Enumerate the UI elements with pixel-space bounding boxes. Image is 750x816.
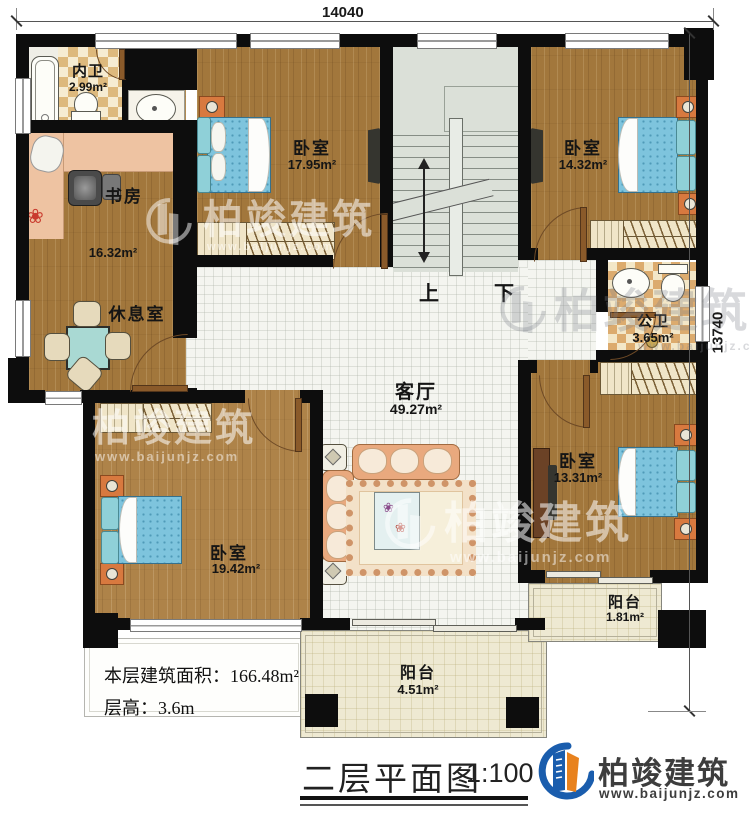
stair-arrow-stem — [423, 168, 425, 254]
wall-bedroomtop-bottom-a — [186, 255, 333, 267]
watermark-text: 柏竣建筑 — [203, 200, 375, 240]
bed-right-pillow-a — [676, 450, 696, 481]
lounge-chair-top — [73, 301, 101, 327]
bed-top-pillow-b — [211, 153, 226, 181]
stair-arrow-up — [418, 158, 430, 169]
wardrobe-bedroom-topright-shelf — [590, 220, 626, 251]
dim-right-value: 13740 — [711, 303, 726, 363]
title-underline-thin — [300, 804, 528, 806]
sofa-cushion — [358, 448, 387, 474]
bed-topright-pillow-b — [676, 156, 696, 191]
pillar-balcony-left — [305, 694, 338, 727]
dim-ext-bottom — [648, 711, 706, 712]
label-neiwei-area: 2.99m² — [69, 81, 107, 93]
wardrobe-bedroom-topright-rod — [623, 220, 698, 251]
wall-lounge-bottom-a — [8, 390, 45, 403]
dim-line-right — [689, 34, 690, 712]
bed-top-headboard-a — [197, 117, 211, 154]
label-keting: 客厅 — [395, 383, 437, 402]
bed-bottomleft-headboard-b — [101, 531, 119, 564]
wall-stairs-right — [518, 34, 531, 260]
door-leaf-neiwei — [119, 49, 125, 80]
window-top-2 — [250, 33, 340, 49]
bed-topright-blanket — [618, 118, 638, 192]
label-bedroom-bottomleft: 卧室 — [210, 545, 248, 562]
label-stairs-up: 上 — [419, 284, 439, 304]
bed-top-blanket — [248, 118, 270, 192]
dim-top-value: 14040 — [322, 5, 364, 20]
wardrobe-bedroom-right-rod — [631, 362, 698, 395]
pillar-balcony-east — [658, 610, 706, 648]
watermark-text: 柏竣建筑 — [444, 502, 632, 546]
title-underline-thick — [300, 796, 528, 800]
tv-bedroom-topright — [531, 128, 543, 184]
lamp-table-top — [320, 444, 347, 471]
wall-bedroomright-top-b — [590, 360, 598, 373]
nightstand — [674, 518, 698, 540]
brand-url: www.baijunjz.com — [599, 786, 740, 801]
label-bedroom-right: 卧室 — [559, 453, 597, 470]
label-bedroom-topright-area: 14.32m² — [559, 158, 607, 171]
bathtub — [31, 56, 59, 130]
stair-arrow-down — [418, 252, 430, 263]
sofa-cushion — [390, 448, 419, 474]
pillar-balcony-right — [506, 697, 539, 728]
watermark-building-icon — [143, 196, 193, 254]
bed-right-pillow-b — [676, 482, 696, 513]
sheet-title: 二层平面图 — [302, 752, 482, 800]
wall-nook-bedroom — [186, 47, 197, 90]
label-neiwei: 内卫 — [72, 64, 104, 79]
wall-bedroomright-top-a — [518, 360, 537, 373]
watermark-building-icon — [28, 406, 74, 462]
flower-pot: ❀ — [27, 207, 44, 227]
window-top-stairs — [417, 33, 497, 49]
info-area-line: 本层建筑面积：166.48m² — [104, 662, 299, 688]
brand-logo: 柏竣建筑 www.baijunjz.com — [536, 740, 736, 810]
wardrobe-bedroom-right-shelf — [600, 362, 634, 395]
door-leaf-bedroom-top — [381, 214, 388, 269]
watermark-text: 柏竣建筑 — [92, 410, 256, 448]
slider-balcony-right-a — [546, 571, 601, 578]
door-leaf-lounge — [132, 385, 188, 392]
window-top-1 — [95, 33, 237, 49]
slider-balcony-bottom-a — [352, 619, 436, 626]
watermark-building-icon — [498, 284, 546, 342]
bed-bottomleft-headboard-a — [101, 497, 119, 530]
label-bedroom-top: 卧室 — [293, 140, 331, 157]
bed-topright-pillow-a — [676, 120, 696, 155]
watermark-url: www.baijunjz.com — [638, 340, 750, 352]
brand-logo-icon — [536, 740, 594, 804]
nightstand — [100, 563, 124, 585]
wall-bedroomright-bottom-a — [518, 570, 545, 583]
watermark-url: www.baijunjz.com — [207, 242, 334, 253]
label-shufang-area: 16.32m² — [89, 246, 137, 259]
floor-plan-sheet: ❀ — [0, 0, 750, 816]
wall-neiwei-bottom — [16, 120, 197, 133]
nightstand — [674, 424, 698, 446]
computer-monitor — [68, 170, 102, 206]
wall-bottom-b — [300, 618, 350, 630]
nightstand — [199, 96, 225, 118]
watermark-building-icon — [382, 496, 436, 560]
label-balcony-right: 阳台 — [608, 595, 642, 610]
window-bedroombl-bottom — [130, 619, 302, 632]
pillar-bottomleft — [83, 613, 118, 648]
nightstand — [100, 475, 124, 497]
label-bedroom-bottomleft-area: 19.42m² — [212, 562, 260, 575]
label-balcony-bottom: 阳台 — [400, 666, 436, 682]
bed-top-headboard-b — [197, 155, 211, 193]
lounge-chair-right — [105, 332, 131, 360]
info-height-line: 层高：3.6m — [104, 694, 195, 720]
door-leaf-bedroom-topright — [580, 207, 587, 262]
bed-top-pillow-a — [211, 122, 226, 152]
slider-balcony-right-b — [598, 577, 653, 584]
wall-bedroombl-right — [310, 390, 323, 630]
window-left-1 — [15, 78, 31, 134]
window-left-2 — [15, 300, 31, 357]
watermark-url: www.baijunjz.com — [450, 550, 611, 565]
sofa-cushion — [423, 448, 452, 474]
slider-balcony-bottom-b — [433, 625, 517, 632]
label-keting-area: 49.27m² — [390, 402, 442, 416]
door-leaf-bedroom-right — [583, 375, 590, 428]
label-bedroom-topright: 卧室 — [564, 140, 602, 157]
window-lounge-stub — [45, 391, 82, 405]
door-leaf-bedroom-bottomleft — [295, 398, 302, 452]
label-xiuxishi: 休息室 — [109, 306, 166, 323]
wall-bedroomright-bottom-b — [650, 570, 708, 583]
label-bedroom-right-area: 13.31m² — [554, 471, 602, 484]
watermark-url: www.baijunjz.com — [95, 450, 239, 463]
window-top-3 — [565, 33, 669, 49]
dim-line-top — [16, 21, 714, 22]
bed-bottomleft-blanket — [119, 497, 137, 563]
lamp-table-bottom — [320, 558, 347, 585]
toilet-gongwei-tank — [658, 264, 688, 274]
label-shufang: 书房 — [105, 188, 143, 205]
wall-bottom-c — [515, 618, 545, 630]
sheet-scale: 1:100 — [466, 758, 534, 789]
label-bedroom-top-area: 17.95m² — [288, 158, 336, 171]
label-balcony-bottom-area: 4.51m² — [397, 683, 438, 696]
tv-bedroom-top — [368, 128, 380, 184]
lounge-chair-left — [44, 333, 70, 361]
label-balcony-right-area: 1.81m² — [606, 611, 644, 623]
